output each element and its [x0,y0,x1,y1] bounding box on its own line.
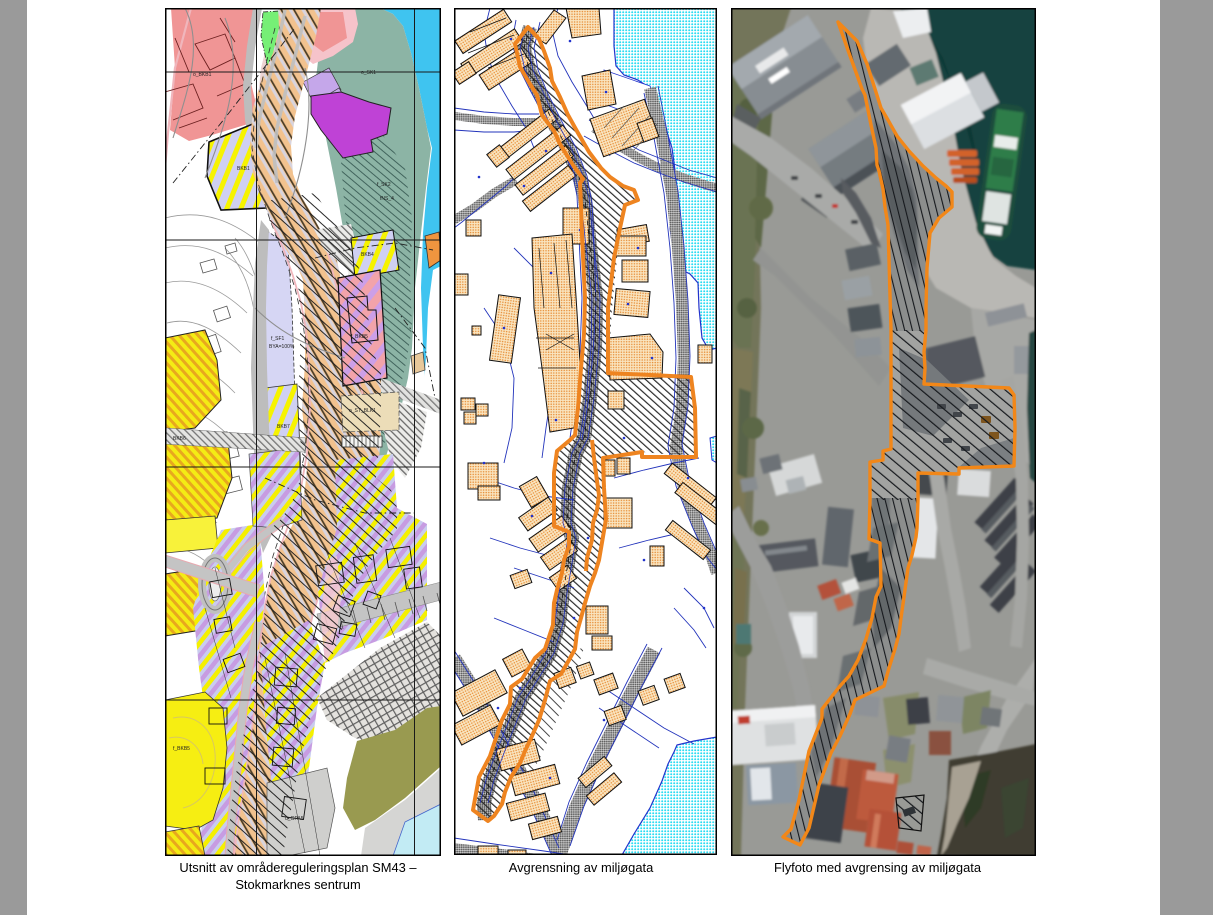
svg-text:o_ST_BLK1: o_ST_BLK1 [349,408,376,414]
svg-text:u_GPA5: u_GPA5 [285,816,304,822]
svg-text:BKB1: BKB1 [237,166,250,172]
svg-text:BKB4: BKB4 [361,252,374,258]
svg-text:o_SK1: o_SK1 [361,70,376,76]
svg-text:BKB6: BKB6 [173,436,186,442]
svg-text:BKB7: BKB7 [277,424,290,430]
svg-text:f_BKB5: f_BKB5 [173,746,190,752]
svg-text:o_BKB1: o_BKB1 [193,72,212,78]
svg-text:f_SF1: f_SF1 [271,336,285,342]
svg-text:f_SK2: f_SK2 [377,182,391,188]
svg-text:BYA=100%: BYA=100% [269,344,295,350]
svg-text:fNS_4: fNS_4 [380,196,394,202]
svg-text:f_BKB5: f_BKB5 [351,334,368,340]
